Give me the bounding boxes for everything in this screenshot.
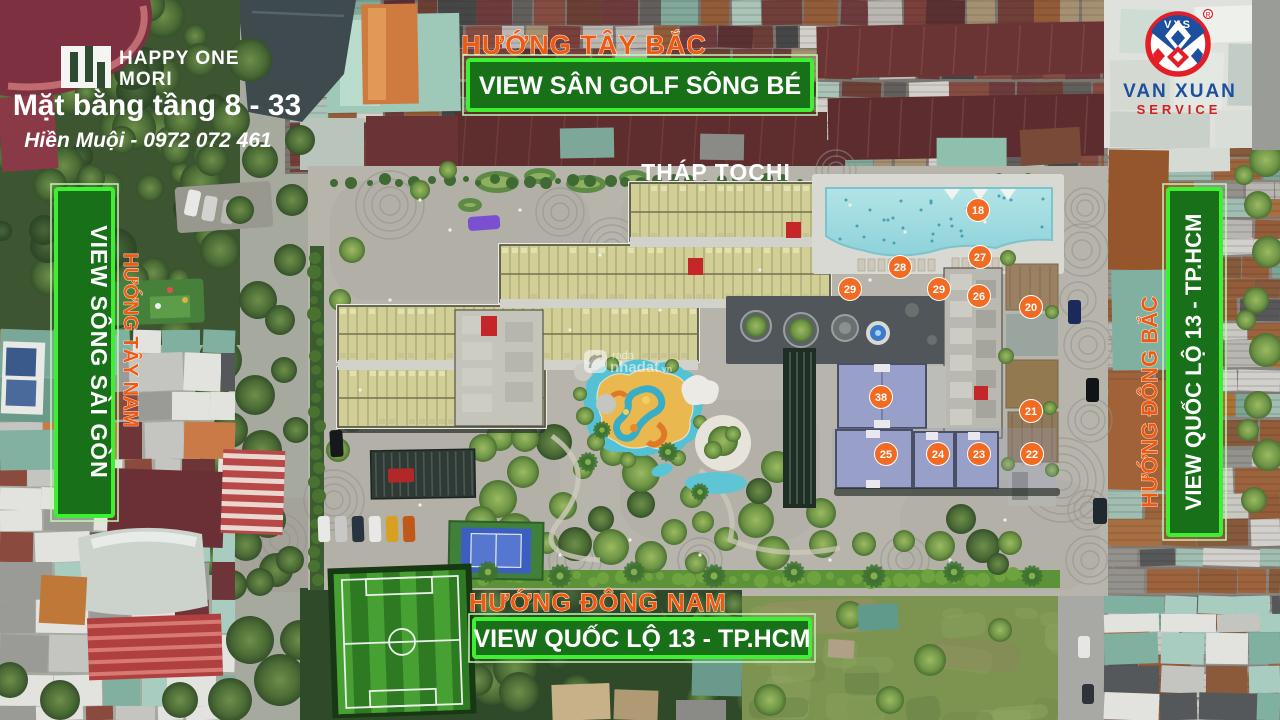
svg-text:SERVICE: SERVICE	[1137, 102, 1222, 117]
svg-text:VIEW SÔNG SÀI GÒN: VIEW SÔNG SÀI GÒN	[86, 225, 113, 478]
svg-text:23: 23	[973, 449, 985, 461]
svg-text:24: 24	[932, 449, 945, 461]
svg-text:21: 21	[1025, 406, 1037, 418]
svg-text:29: 29	[933, 284, 945, 296]
svg-text:VIEW QUỐC LỘ 13 - TP.HCM: VIEW QUỐC LỘ 13 - TP.HCM	[473, 623, 810, 653]
svg-text:THÁP TOCHI: THÁP TOCHI	[641, 158, 791, 185]
svg-text:HƯỚNG ĐÔNG BẮC: HƯỚNG ĐÔNG BẮC	[1137, 296, 1162, 508]
svg-text:Hiền Muội - 0972 072 461: Hiền Muội - 0972 072 461	[24, 129, 271, 152]
svg-text:VIEW SÂN GOLF SÔNG BÉ: VIEW SÂN GOLF SÔNG BÉ	[479, 70, 801, 100]
svg-text:28: 28	[894, 262, 906, 274]
svg-text:R: R	[1205, 12, 1210, 19]
svg-text:18: 18	[972, 205, 984, 217]
svg-text:HƯỚNG ĐÔNG NAM: HƯỚNG ĐÔNG NAM	[469, 587, 726, 617]
svg-text:20: 20	[1025, 302, 1037, 314]
svg-text:MORI: MORI	[119, 69, 173, 90]
svg-text:38: 38	[875, 392, 887, 404]
svg-text:22: 22	[1026, 449, 1038, 461]
svg-text:VXS: VXS	[1164, 19, 1192, 31]
svg-text:29: 29	[844, 284, 856, 296]
svg-text:HƯỚNG TÂY NAM: HƯỚNG TÂY NAM	[119, 253, 143, 427]
svg-text:VIEW QUỐC LỘ 13 - TP.HCM: VIEW QUỐC LỘ 13 - TP.HCM	[1180, 214, 1206, 511]
svg-text:26: 26	[973, 291, 985, 303]
svg-text:25: 25	[880, 449, 892, 461]
svg-text:VAN XUAN: VAN XUAN	[1123, 81, 1237, 102]
svg-text:Mặt bằng tầng 8 - 33: Mặt bằng tầng 8 - 33	[13, 88, 301, 122]
svg-text:HAPPY ONE: HAPPY ONE	[119, 48, 240, 69]
svg-text:27: 27	[974, 252, 986, 264]
